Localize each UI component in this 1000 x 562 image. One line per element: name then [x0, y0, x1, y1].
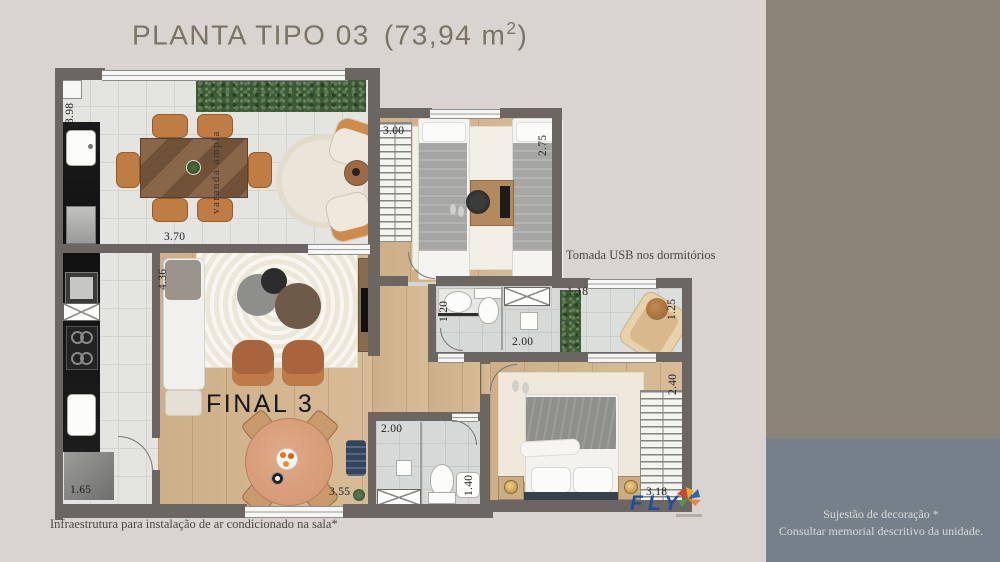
kitchen-sink-2	[67, 394, 96, 436]
dim-bath1-height: 1.20	[438, 294, 450, 322]
cabinet-box	[63, 303, 100, 321]
wall	[552, 108, 562, 288]
pillow	[573, 467, 613, 493]
cup	[271, 472, 284, 485]
blanket	[419, 143, 467, 251]
unit-label: FINAL 3	[206, 390, 314, 419]
page-title: PLANTA TIPO 03(73,94 m2)	[132, 18, 528, 51]
bed-bench	[520, 438, 581, 457]
dining-chair	[152, 198, 188, 222]
wall	[343, 504, 493, 518]
shower-drain-2	[396, 460, 412, 476]
fruit-bowl	[276, 448, 298, 470]
window	[102, 70, 348, 81]
sofa-throw	[165, 260, 201, 300]
leather-armchair	[232, 340, 274, 386]
dim-terrace-height: 1.25	[666, 292, 678, 320]
floor-plan-page: Sujestão de decoração * Consultar memori…	[0, 0, 1000, 562]
right-sidebar-top	[766, 0, 1000, 438]
wall	[656, 278, 692, 288]
toilet	[478, 297, 499, 324]
dim-bedroom2-height: 2.75	[537, 124, 549, 156]
dim-kitchen-width: 1.65	[70, 484, 91, 496]
wall	[62, 244, 310, 253]
window	[588, 353, 656, 363]
wall	[368, 412, 376, 505]
ac-note: Infraestrutura para instalação de ar con…	[50, 517, 338, 532]
pillow	[531, 467, 571, 493]
tv	[361, 288, 368, 332]
wall	[55, 68, 63, 520]
desk-monitor	[500, 186, 510, 218]
dining-chair	[152, 114, 188, 138]
wall	[55, 504, 247, 518]
slippers	[450, 204, 456, 215]
terrace-rail	[588, 279, 658, 289]
pillow	[422, 122, 466, 142]
wall	[376, 276, 408, 286]
shower-box	[504, 287, 550, 306]
fly-logo-icon	[674, 486, 704, 510]
bedroom2-wardrobe	[378, 122, 412, 242]
dining-chair	[116, 152, 140, 188]
decoration-note-panel: Sujestão de decoração * Consultar memori…	[766, 438, 1000, 562]
dim-terrace-top: 1.18	[567, 286, 588, 298]
side-table-cup	[352, 168, 360, 176]
lounge-pillow	[646, 298, 668, 320]
ottoman	[165, 390, 202, 416]
fruit	[288, 453, 294, 459]
title-area: (73,94 m	[384, 19, 507, 50]
shower-drain	[520, 312, 538, 330]
dim-bath1-width: 2.00	[512, 336, 533, 348]
lamp	[504, 480, 518, 494]
title-area-sup: 2	[506, 18, 517, 38]
burner	[80, 331, 93, 344]
dim-living-width: 3.55	[329, 486, 350, 498]
fly-logo: FLY	[630, 492, 702, 528]
title-area-close: )	[518, 19, 529, 50]
desk-chair	[466, 190, 490, 214]
wall	[436, 276, 562, 286]
dim-balcony-height: 3.98	[64, 94, 76, 124]
leather-armchair	[282, 340, 324, 386]
dining-chair	[248, 152, 272, 188]
runner-rug	[346, 440, 366, 476]
wall	[152, 470, 160, 504]
toilet-tank-2	[428, 492, 456, 504]
small-plant	[353, 489, 365, 501]
dim-bedroom1-height: 2.40	[667, 365, 679, 395]
decoration-note: Sujestão de decoração * Consultar memori…	[766, 506, 996, 540]
fruit	[280, 452, 286, 458]
dim-balcony-width: 3.70	[164, 231, 185, 243]
vertical-garden	[560, 290, 581, 353]
dim-bath2-width: 2.00	[381, 423, 402, 435]
sliding-door	[308, 244, 370, 255]
wall	[682, 278, 692, 512]
hallway-floor	[372, 286, 430, 420]
dim-bedroom2-width: 3.00	[383, 125, 404, 137]
window	[430, 109, 502, 119]
fruit	[283, 461, 289, 467]
microwave	[65, 272, 98, 304]
fly-logo-subtext	[676, 514, 702, 517]
title-main: PLANTA TIPO 03	[132, 19, 370, 50]
decoration-note-line2: Consultar memorial descritivo da unidade…	[766, 523, 996, 540]
cooktop	[66, 326, 98, 370]
dim-living-height: 4.36	[157, 256, 169, 290]
door-opening	[438, 353, 464, 363]
burner	[80, 352, 93, 365]
oven	[66, 206, 96, 244]
faucet	[88, 144, 93, 149]
table-plant	[186, 160, 201, 175]
dim-bath2-sink: 1.40	[463, 468, 475, 496]
wall	[368, 116, 380, 356]
decoration-note-line1: Sujestão de decoração *	[766, 506, 996, 523]
pouf-brown	[275, 283, 321, 329]
balcony-label: varanda ampla	[210, 96, 222, 214]
door-opening	[481, 364, 490, 394]
usb-note: Tomada USB nos dormitórios	[566, 248, 715, 263]
shower-glass	[501, 287, 503, 350]
wall	[428, 284, 436, 360]
